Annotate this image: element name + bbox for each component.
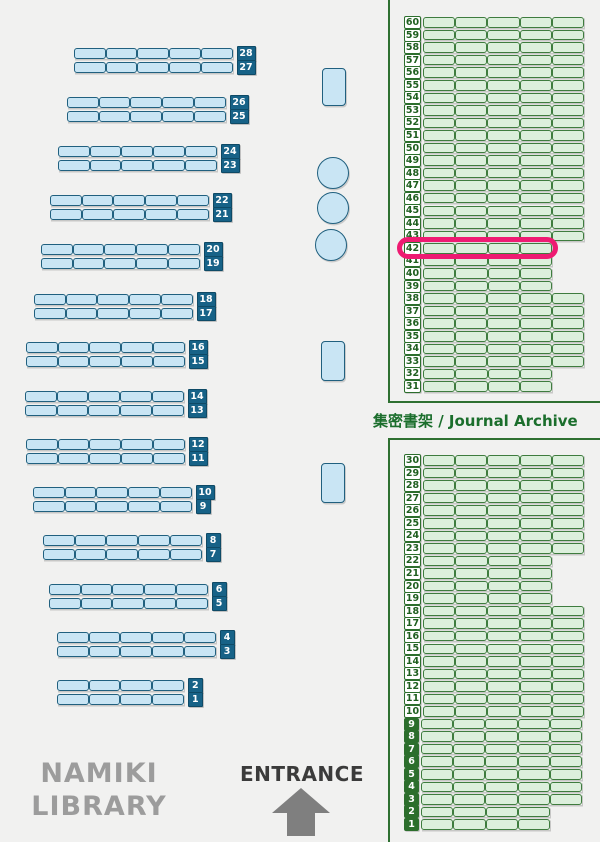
round-table bbox=[317, 157, 349, 189]
shelf-segment bbox=[423, 93, 455, 104]
carrel-desk bbox=[321, 341, 345, 381]
shelf-number-label: 19 bbox=[204, 256, 223, 271]
shelf-segment bbox=[26, 453, 58, 464]
shelf-segment bbox=[455, 644, 487, 655]
shelf-segment bbox=[49, 584, 81, 595]
shelf-segment bbox=[520, 93, 552, 104]
shelf-segment bbox=[113, 195, 145, 206]
shelf-segment bbox=[112, 598, 144, 609]
shelf-bar bbox=[423, 67, 584, 78]
shelf-number-label: 49 bbox=[404, 154, 421, 167]
shelf-segment bbox=[487, 331, 519, 342]
shelf-segment bbox=[26, 439, 58, 450]
shelf-segment bbox=[455, 218, 487, 229]
shelf-number-label: 25 bbox=[404, 517, 421, 530]
archive-shelf-47: 47 bbox=[404, 180, 584, 192]
shelf-segment bbox=[99, 97, 131, 108]
shelf-segment bbox=[120, 646, 152, 657]
shelf-segment bbox=[106, 48, 138, 59]
shelf-segment bbox=[552, 518, 584, 529]
shelf-segment bbox=[423, 206, 455, 217]
shelf-segment bbox=[487, 105, 519, 116]
shelf-segment bbox=[33, 487, 65, 498]
shelf-bar bbox=[26, 356, 185, 367]
shelf-segment bbox=[488, 581, 520, 592]
open-stack-shelf-14: 14 bbox=[25, 390, 207, 403]
shelf-segment bbox=[121, 453, 153, 464]
shelf-segment bbox=[453, 807, 485, 818]
shelf-number-label: 30 bbox=[404, 454, 421, 467]
shelf-segment bbox=[487, 293, 519, 304]
shelf-bar bbox=[423, 80, 584, 91]
shelf-segment bbox=[455, 268, 487, 279]
shelf-bar bbox=[423, 455, 584, 466]
shelf-number-label: 25 bbox=[230, 109, 249, 124]
archive-shelf-37: 37 bbox=[404, 305, 584, 317]
shelf-number-label: 59 bbox=[404, 29, 421, 42]
open-stack-shelf-22: 22 bbox=[50, 194, 232, 207]
shelf-segment bbox=[520, 381, 552, 392]
shelf-segment bbox=[520, 493, 552, 504]
shelf-number-label: 27 bbox=[237, 60, 256, 75]
archive-shelf-45: 45 bbox=[404, 205, 584, 217]
shelf-segment bbox=[421, 719, 453, 730]
shelf-segment bbox=[487, 468, 519, 479]
shelf-segment bbox=[520, 531, 552, 542]
archive-shelf-51: 51 bbox=[404, 129, 584, 141]
shelf-segment bbox=[423, 268, 455, 279]
shelf-segment bbox=[144, 598, 176, 609]
shelf-bar bbox=[26, 453, 185, 464]
shelf-segment bbox=[455, 369, 487, 380]
shelf-segment bbox=[455, 67, 487, 78]
shelf-segment bbox=[486, 807, 518, 818]
shelf-bar bbox=[25, 405, 184, 416]
shelf-segment bbox=[485, 731, 517, 742]
shelf-number-label: 10 bbox=[404, 705, 421, 718]
archive-shelf-56: 56 bbox=[404, 67, 584, 79]
shelf-segment bbox=[455, 80, 487, 91]
shelf-segment bbox=[75, 535, 107, 546]
shelf-bar bbox=[423, 543, 584, 554]
archive-shelf-6: 6 bbox=[404, 756, 582, 768]
shelf-segment bbox=[552, 80, 584, 91]
shelf-bar bbox=[423, 606, 584, 617]
shelf-segment bbox=[423, 143, 455, 154]
shelf-bar bbox=[423, 105, 584, 116]
shelf-number-label: 50 bbox=[404, 142, 421, 155]
shelf-bar bbox=[58, 160, 217, 171]
shelf-number-label: 12 bbox=[189, 437, 208, 452]
shelf-segment bbox=[520, 180, 552, 191]
shelf-bar bbox=[43, 549, 202, 560]
shelf-segment bbox=[89, 680, 121, 691]
open-stack-shelf-28: 28 bbox=[74, 47, 256, 60]
shelf-bar bbox=[423, 55, 584, 66]
shelf-segment bbox=[487, 356, 519, 367]
shelf-bar bbox=[423, 656, 584, 667]
shelf-segment bbox=[455, 30, 487, 41]
shelf-segment bbox=[423, 468, 455, 479]
shelf-bar bbox=[421, 782, 582, 793]
shelf-number-label: 10 bbox=[196, 485, 215, 500]
shelf-segment bbox=[67, 97, 99, 108]
shelf-segment bbox=[485, 782, 517, 793]
shelf-segment bbox=[455, 281, 487, 292]
shelf-segment bbox=[89, 632, 121, 643]
shelf-segment bbox=[153, 356, 185, 367]
shelf-segment bbox=[487, 344, 519, 355]
shelf-segment bbox=[423, 356, 455, 367]
entrance-arrow-icon bbox=[272, 788, 330, 836]
shelf-segment bbox=[455, 118, 487, 129]
shelf-bar bbox=[423, 493, 584, 504]
shelf-segment bbox=[26, 342, 58, 353]
shelf-number-label: 58 bbox=[404, 41, 421, 54]
shelf-bar bbox=[423, 143, 584, 154]
shelf-bar bbox=[57, 680, 184, 691]
open-stack-shelf-4: 4 bbox=[57, 631, 235, 644]
shelf-segment bbox=[455, 318, 487, 329]
archive-shelf-7: 7 bbox=[404, 743, 582, 755]
shelf-bar bbox=[421, 769, 582, 780]
shelf-number-label: 55 bbox=[404, 79, 421, 92]
archive-shelf-13: 13 bbox=[404, 668, 584, 680]
shelf-segment bbox=[455, 480, 487, 491]
shelf-segment bbox=[520, 17, 552, 28]
shelf-segment bbox=[488, 268, 520, 279]
shelf-segment bbox=[169, 62, 201, 73]
archive-shelf-1: 1 bbox=[404, 818, 550, 830]
shelf-segment bbox=[201, 48, 233, 59]
shelf-segment bbox=[487, 67, 519, 78]
shelf-number-label: 21 bbox=[213, 207, 232, 222]
shelf-segment bbox=[26, 356, 58, 367]
shelf-number-label: 21 bbox=[404, 567, 421, 580]
open-stack-shelf-7: 7 bbox=[43, 548, 221, 561]
shelf-bar bbox=[423, 93, 584, 104]
shelf-bar bbox=[423, 381, 552, 392]
shelf-bar bbox=[74, 62, 233, 73]
shelf-segment bbox=[487, 518, 519, 529]
shelf-segment bbox=[487, 644, 519, 655]
shelf-segment bbox=[552, 55, 584, 66]
archive-shelf-40: 40 bbox=[404, 268, 552, 280]
shelf-segment bbox=[145, 195, 177, 206]
archive-shelf-25: 25 bbox=[404, 517, 584, 529]
shelf-segment bbox=[487, 606, 519, 617]
shelf-segment bbox=[552, 318, 584, 329]
shelf-segment bbox=[423, 180, 455, 191]
shelf-bar bbox=[423, 206, 584, 217]
shelf-segment bbox=[57, 694, 89, 705]
shelf-segment bbox=[552, 493, 584, 504]
shelf-number-label: 8 bbox=[206, 533, 221, 548]
shelf-segment bbox=[520, 118, 552, 129]
shelf-segment bbox=[184, 632, 216, 643]
shelf-segment bbox=[106, 549, 138, 560]
shelf-segment bbox=[136, 244, 168, 255]
shelf-segment bbox=[423, 344, 455, 355]
shelf-segment bbox=[552, 231, 584, 242]
open-stack-shelf-26: 26 bbox=[67, 96, 249, 109]
shelf-segment bbox=[423, 593, 455, 604]
shelf-bar bbox=[423, 369, 552, 380]
shelf-segment bbox=[120, 632, 152, 643]
shelf-bar bbox=[423, 694, 584, 705]
archive-shelf-11: 11 bbox=[404, 693, 584, 705]
shelf-segment bbox=[65, 487, 97, 498]
shelf-segment bbox=[423, 381, 455, 392]
shelf-bar bbox=[423, 155, 584, 166]
shelf-bar bbox=[423, 344, 584, 355]
shelf-segment bbox=[152, 646, 184, 657]
shelf-segment bbox=[455, 130, 487, 141]
shelf-segment bbox=[153, 342, 185, 353]
shelf-bar bbox=[49, 598, 208, 609]
shelf-segment bbox=[455, 581, 487, 592]
shelf-segment bbox=[455, 681, 487, 692]
shelf-segment bbox=[550, 756, 582, 767]
shelf-segment bbox=[520, 155, 552, 166]
archive-shelf-53: 53 bbox=[404, 104, 584, 116]
shelf-segment bbox=[488, 281, 520, 292]
shelf-segment bbox=[201, 62, 233, 73]
shelf-segment bbox=[423, 669, 455, 680]
shelf-segment bbox=[455, 493, 487, 504]
shelf-number-label: 27 bbox=[404, 492, 421, 505]
shelf-segment bbox=[552, 644, 584, 655]
open-stack-shelf-8: 8 bbox=[43, 534, 221, 547]
shelf-segment bbox=[487, 130, 519, 141]
shelf-segment bbox=[520, 293, 552, 304]
shelf-segment bbox=[520, 606, 552, 617]
shelf-number-label: 34 bbox=[404, 342, 421, 355]
shelf-segment bbox=[455, 531, 487, 542]
shelf-bar bbox=[423, 568, 552, 579]
shelf-segment bbox=[423, 480, 455, 491]
archive-shelf-15: 15 bbox=[404, 643, 584, 655]
archive-shelf-21: 21 bbox=[404, 567, 552, 579]
shelf-segment bbox=[455, 42, 487, 53]
shelf-segment bbox=[75, 549, 107, 560]
shelf-bar bbox=[423, 293, 584, 304]
shelf-bar bbox=[423, 180, 584, 191]
shelf-segment bbox=[520, 55, 552, 66]
shelf-number-label: 36 bbox=[404, 317, 421, 330]
archive-shelf-26: 26 bbox=[404, 505, 584, 517]
shelf-segment bbox=[423, 518, 455, 529]
shelf-segment bbox=[487, 168, 519, 179]
shelf-segment bbox=[423, 606, 455, 617]
shelf-segment bbox=[487, 669, 519, 680]
shelf-segment bbox=[487, 681, 519, 692]
shelf-segment bbox=[486, 819, 518, 830]
shelf-segment bbox=[520, 568, 552, 579]
shelf-segment bbox=[152, 405, 184, 416]
shelf-number-label: 47 bbox=[404, 179, 421, 192]
shelf-segment bbox=[58, 356, 90, 367]
shelf-segment bbox=[89, 342, 121, 353]
shelf-segment bbox=[168, 258, 200, 269]
shelf-segment bbox=[176, 598, 208, 609]
shelf-segment bbox=[455, 17, 487, 28]
shelf-segment bbox=[104, 258, 136, 269]
shelf-number-label: 53 bbox=[404, 104, 421, 117]
shelf-segment bbox=[520, 631, 552, 642]
archive-shelf-24: 24 bbox=[404, 530, 584, 542]
shelf-segment bbox=[423, 67, 455, 78]
shelf-segment bbox=[520, 268, 552, 279]
shelf-segment bbox=[485, 756, 517, 767]
shelf-number-label: 51 bbox=[404, 129, 421, 142]
shelf-segment bbox=[185, 160, 217, 171]
shelf-segment bbox=[520, 618, 552, 629]
shelf-segment bbox=[88, 405, 120, 416]
shelf-bar bbox=[423, 281, 552, 292]
archive-shelf-50: 50 bbox=[404, 142, 584, 154]
shelf-segment bbox=[96, 501, 128, 512]
shelf-segment bbox=[520, 130, 552, 141]
shelf-segment bbox=[520, 143, 552, 154]
shelf-number-label: 24 bbox=[404, 529, 421, 542]
shelf-segment bbox=[485, 744, 517, 755]
shelf-segment bbox=[145, 209, 177, 220]
shelf-segment bbox=[120, 694, 152, 705]
shelf-segment bbox=[129, 308, 161, 319]
shelf-segment bbox=[194, 97, 226, 108]
shelf-segment bbox=[485, 794, 517, 805]
shelf-segment bbox=[552, 118, 584, 129]
shelf-segment bbox=[423, 193, 455, 204]
shelf-number-label: 31 bbox=[404, 380, 421, 393]
shelf-bar bbox=[423, 505, 584, 516]
shelf-bar bbox=[423, 706, 584, 717]
shelf-segment bbox=[73, 244, 105, 255]
shelf-segment bbox=[455, 505, 487, 516]
shelf-segment bbox=[455, 593, 487, 604]
shelf-bar bbox=[58, 146, 217, 157]
shelf-number-label: 24 bbox=[221, 144, 240, 159]
shelf-segment bbox=[161, 294, 193, 305]
shelf-segment bbox=[170, 549, 202, 560]
shelf-segment bbox=[455, 105, 487, 116]
shelf-number-label: 17 bbox=[404, 617, 421, 630]
shelf-segment bbox=[168, 244, 200, 255]
shelf-bar bbox=[423, 480, 584, 491]
shelf-segment bbox=[455, 631, 487, 642]
shelf-segment bbox=[552, 30, 584, 41]
open-stack-shelf-18: 18 bbox=[34, 293, 216, 306]
shelf-segment bbox=[455, 293, 487, 304]
shelf-segment bbox=[552, 130, 584, 141]
shelf-segment bbox=[487, 531, 519, 542]
shelf-segment bbox=[128, 487, 160, 498]
shelf-segment bbox=[487, 218, 519, 229]
shelf-segment bbox=[130, 97, 162, 108]
shelf-number-label: 8 bbox=[404, 730, 419, 743]
shelf-segment bbox=[518, 794, 550, 805]
shelf-segment bbox=[552, 631, 584, 642]
shelf-segment bbox=[488, 556, 520, 567]
shelf-segment bbox=[153, 146, 185, 157]
round-table bbox=[315, 229, 347, 261]
shelf-segment bbox=[184, 646, 216, 657]
library-name: NAMIKI LIBRARY bbox=[8, 757, 190, 823]
shelf-segment bbox=[520, 42, 552, 53]
archive-shelf-27: 27 bbox=[404, 492, 584, 504]
shelf-segment bbox=[487, 30, 519, 41]
shelf-bar bbox=[423, 356, 584, 367]
shelf-segment bbox=[520, 105, 552, 116]
shelf-segment bbox=[487, 306, 519, 317]
shelf-number-label: 29 bbox=[404, 467, 421, 480]
shelf-segment bbox=[33, 501, 65, 512]
shelf-segment bbox=[455, 356, 487, 367]
shelf-segment bbox=[57, 391, 89, 402]
shelf-segment bbox=[552, 505, 584, 516]
shelf-segment bbox=[421, 794, 453, 805]
shelf-segment bbox=[518, 807, 550, 818]
shelf-segment bbox=[552, 344, 584, 355]
shelf-bar bbox=[423, 518, 584, 529]
shelf-segment bbox=[487, 17, 519, 28]
archive-shelf-58: 58 bbox=[404, 42, 584, 54]
shelf-segment bbox=[423, 30, 455, 41]
shelf-segment bbox=[455, 55, 487, 66]
open-stack-shelf-12: 12 bbox=[26, 438, 208, 451]
shelf-number-label: 32 bbox=[404, 367, 421, 380]
shelf-segment bbox=[552, 468, 584, 479]
open-stack-shelf-13: 13 bbox=[25, 404, 207, 417]
shelf-segment bbox=[137, 62, 169, 73]
shelf-segment bbox=[423, 155, 455, 166]
shelf-segment bbox=[58, 342, 90, 353]
shelf-bar bbox=[74, 48, 233, 59]
shelf-number-label: 1 bbox=[188, 692, 203, 707]
shelf-segment bbox=[130, 111, 162, 122]
shelf-segment bbox=[423, 455, 455, 466]
shelf-segment bbox=[455, 331, 487, 342]
shelf-segment bbox=[423, 130, 455, 141]
shelf-segment bbox=[552, 143, 584, 154]
open-stack-shelf-23: 23 bbox=[58, 159, 240, 172]
shelf-segment bbox=[488, 381, 520, 392]
shelf-number-label: 18 bbox=[197, 292, 216, 307]
shelf-number-label: 6 bbox=[404, 755, 419, 768]
shelf-segment bbox=[25, 405, 57, 416]
carrel-desk bbox=[322, 68, 346, 106]
shelf-segment bbox=[423, 493, 455, 504]
archive-shelf-18: 18 bbox=[404, 605, 584, 617]
shelf-segment bbox=[552, 17, 584, 28]
shelf-segment bbox=[97, 294, 129, 305]
shelf-segment bbox=[144, 584, 176, 595]
shelf-number-label: 16 bbox=[189, 340, 208, 355]
shelf-segment bbox=[455, 306, 487, 317]
open-stack-shelf-20: 20 bbox=[41, 243, 223, 256]
shelf-segment bbox=[50, 209, 82, 220]
shelf-number-label: 17 bbox=[197, 306, 216, 321]
shelf-segment bbox=[518, 744, 550, 755]
shelf-segment bbox=[152, 694, 184, 705]
open-stack-shelf-5: 5 bbox=[49, 597, 227, 610]
shelf-segment bbox=[487, 543, 519, 554]
open-stack-shelf-19: 19 bbox=[41, 257, 223, 270]
shelf-number-label: 13 bbox=[188, 403, 207, 418]
shelf-segment bbox=[121, 342, 153, 353]
shelf-segment bbox=[487, 206, 519, 217]
